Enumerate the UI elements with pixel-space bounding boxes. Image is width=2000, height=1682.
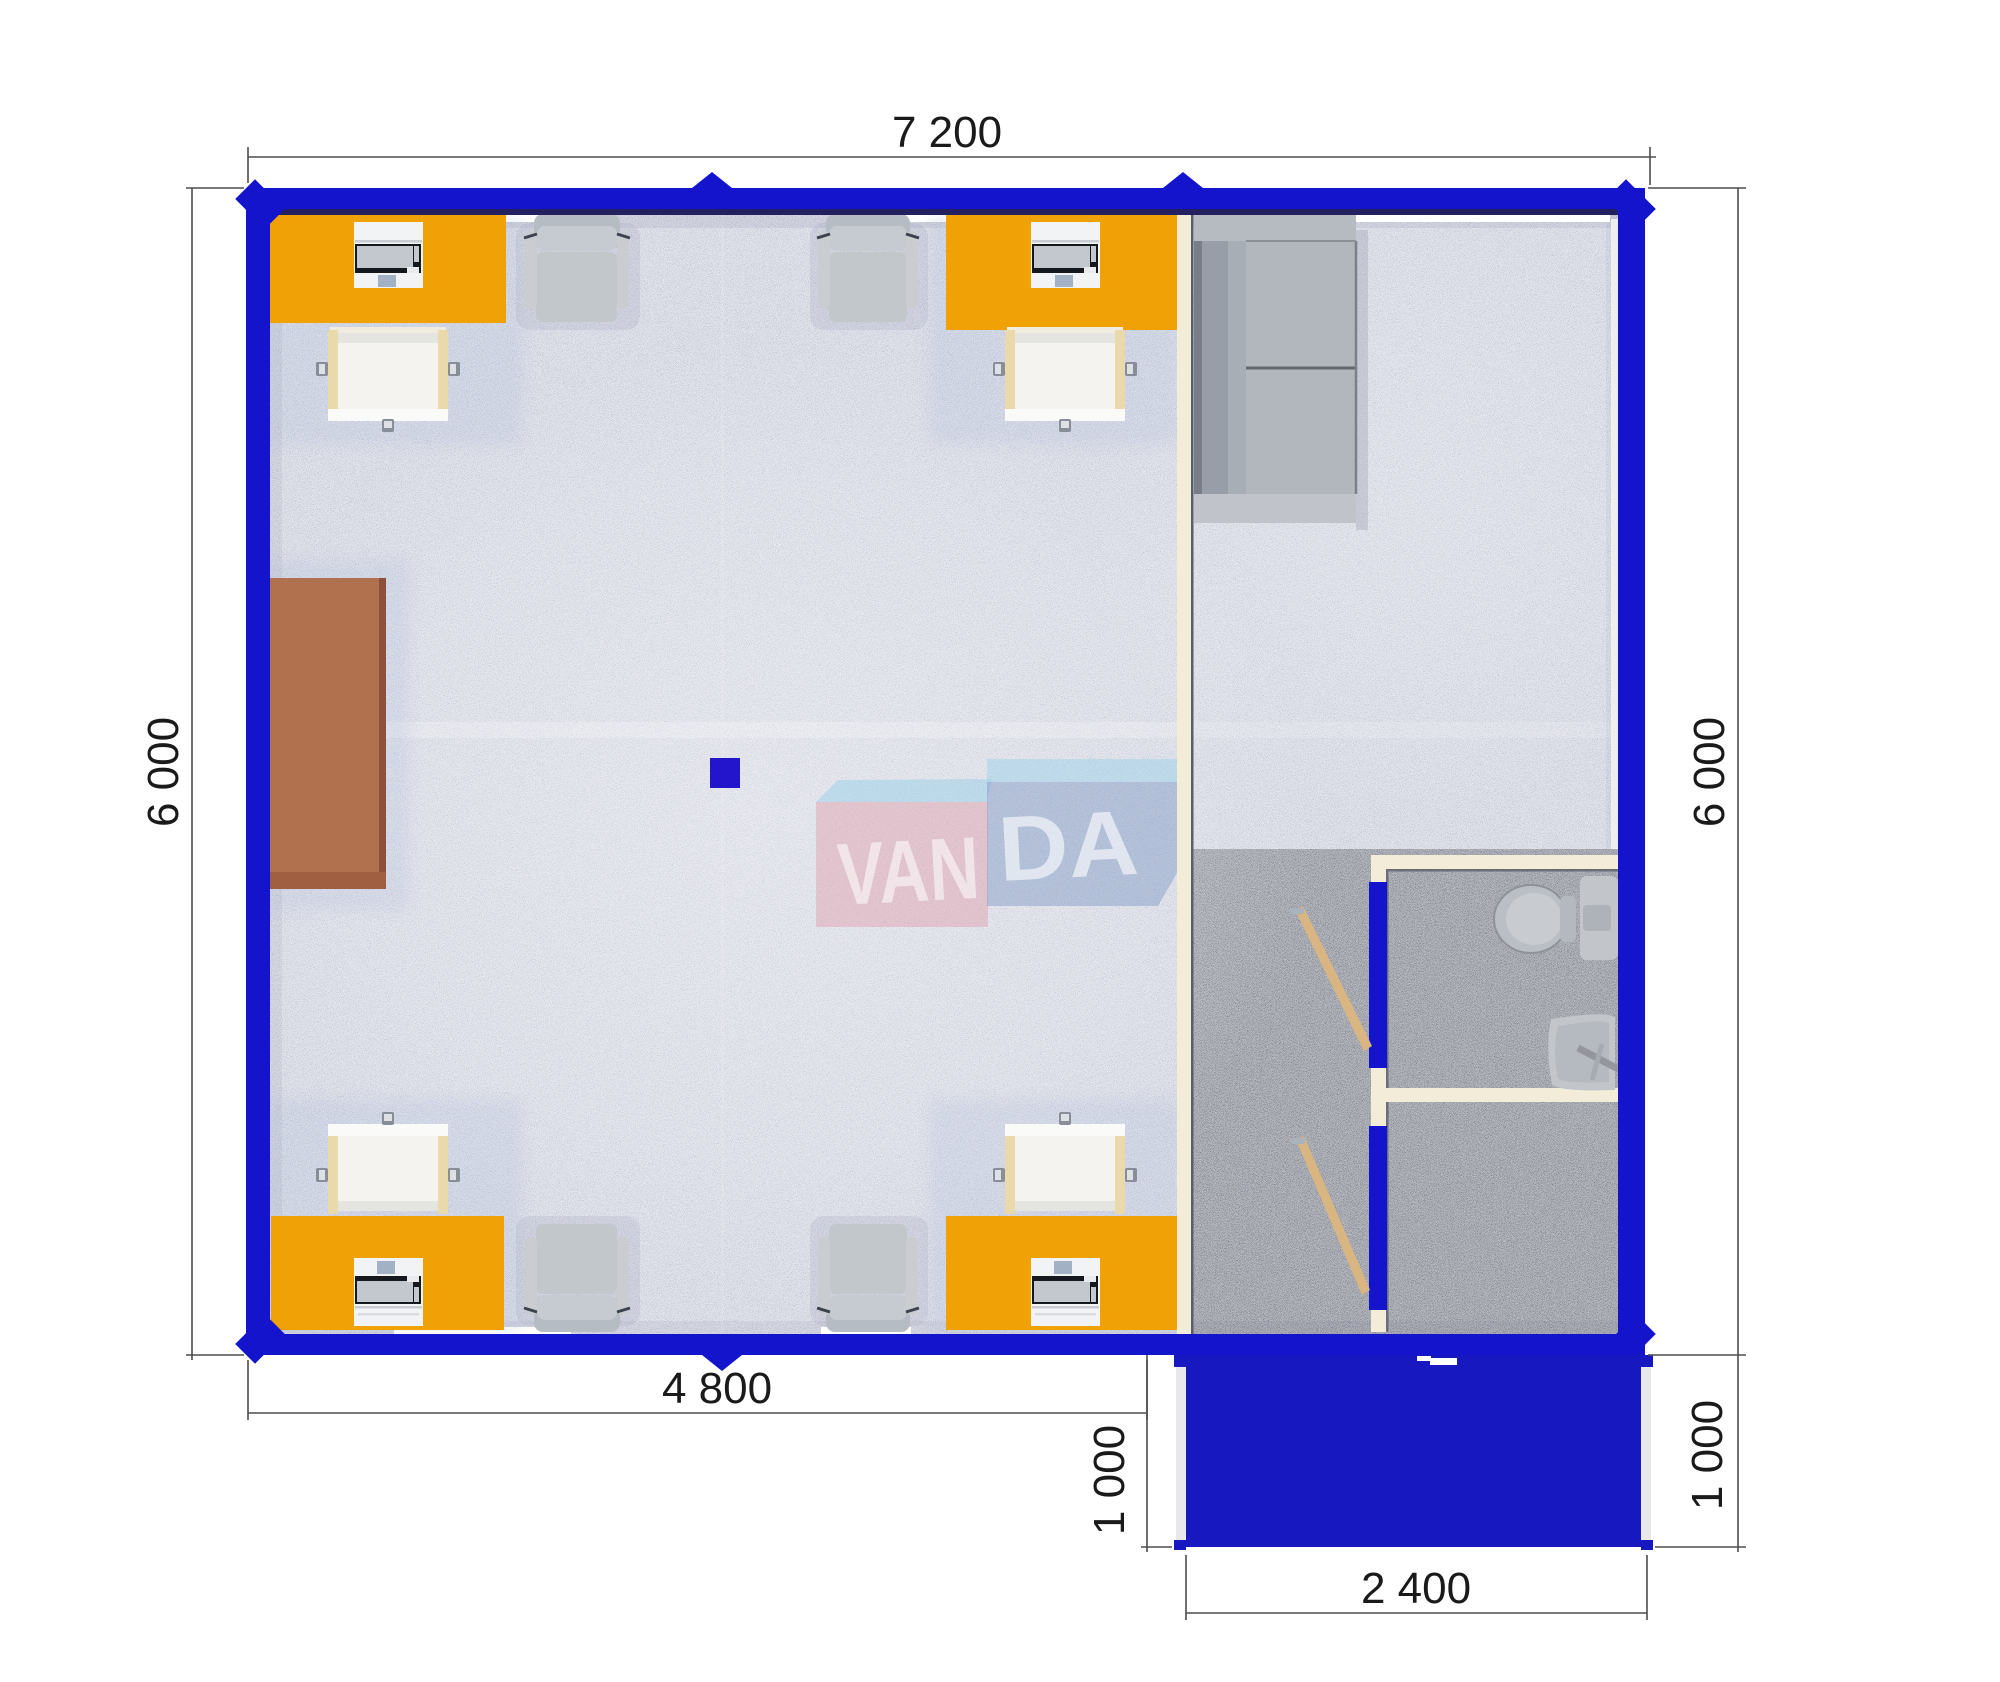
svg-text:1 000: 1 000 — [1683, 1400, 1732, 1510]
svg-text:6 000: 6 000 — [139, 717, 188, 827]
svg-text:4 800: 4 800 — [662, 1364, 772, 1413]
svg-text:6 000: 6 000 — [1685, 717, 1734, 827]
svg-text:DA: DA — [996, 792, 1141, 901]
svg-text:1 000: 1 000 — [1085, 1425, 1134, 1535]
svg-text:2 400: 2 400 — [1361, 1564, 1471, 1613]
svg-text:7 200: 7 200 — [892, 108, 1002, 157]
svg-text:VAN: VAN — [835, 818, 982, 924]
